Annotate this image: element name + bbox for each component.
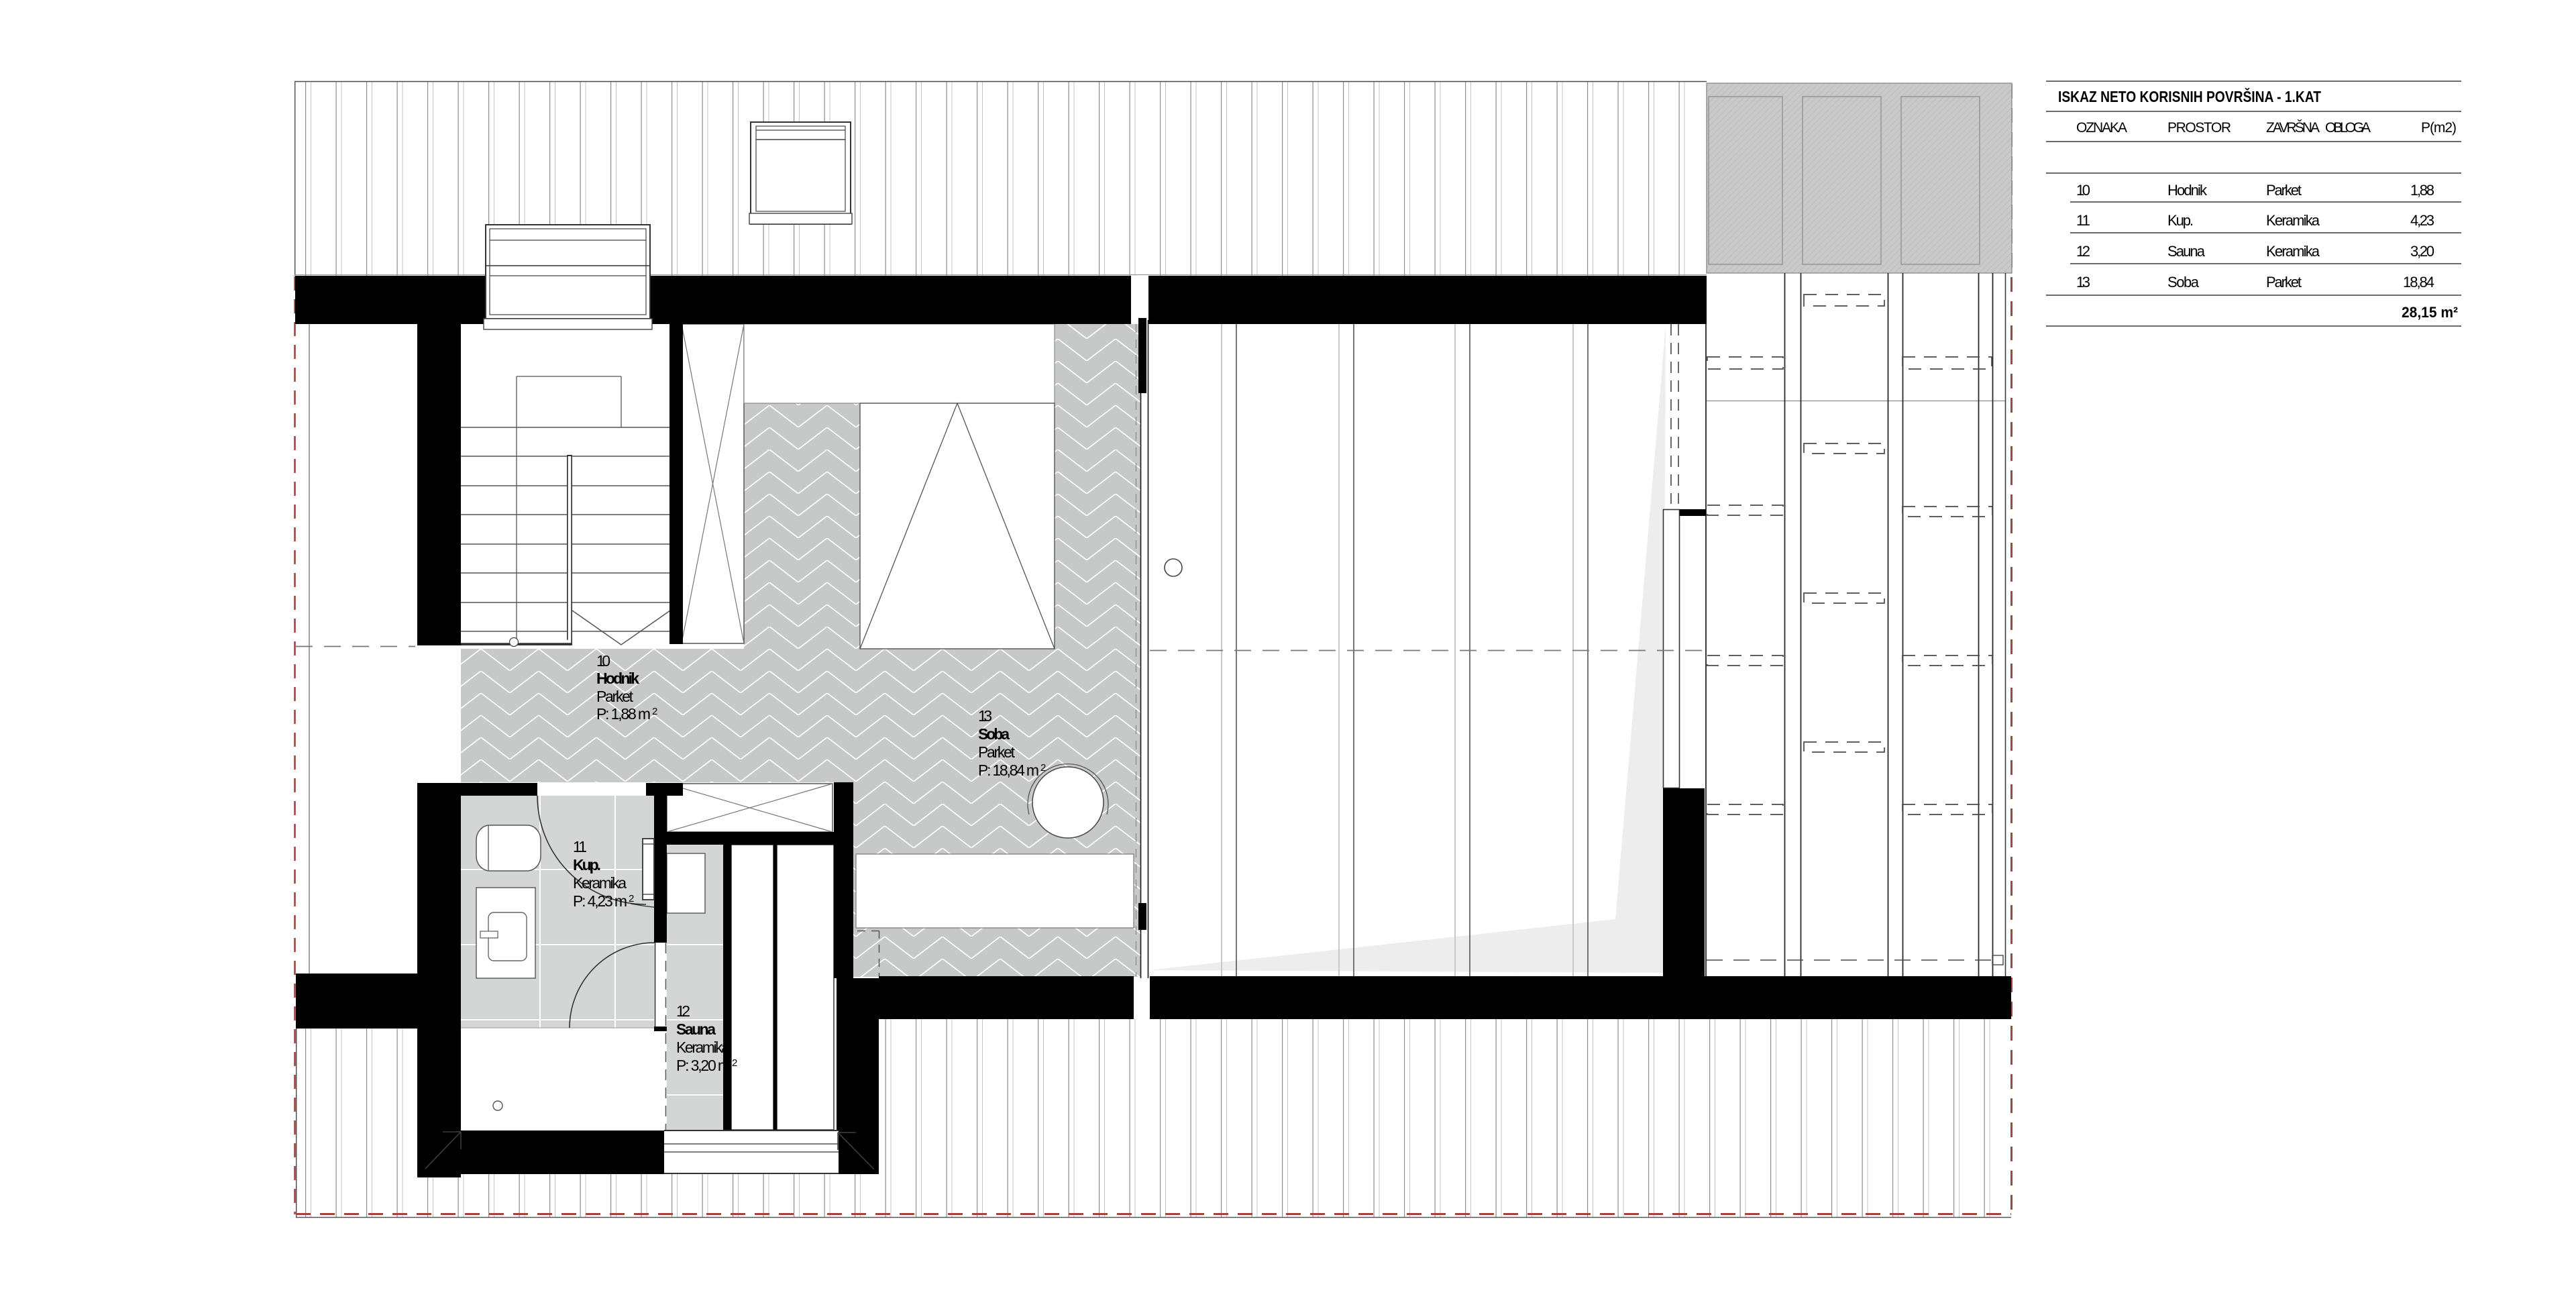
svg-text:P: 1,88 m: P: 1,88 m <box>596 705 651 723</box>
svg-text:12: 12 <box>676 1002 690 1020</box>
svg-text:4,23: 4,23 <box>2410 212 2434 229</box>
svg-text:3,20: 3,20 <box>2410 243 2434 260</box>
svg-text:2: 2 <box>629 893 634 904</box>
svg-text:Soba: Soba <box>2167 274 2200 291</box>
svg-text:13: 13 <box>978 707 992 725</box>
svg-text:28,15 m²: 28,15 m² <box>2402 304 2458 321</box>
svg-text:13: 13 <box>2076 274 2090 291</box>
svg-text:OBLOGA: OBLOGA <box>2325 120 2371 136</box>
svg-text:ISKAZ NETO KORISNIH POVRŠINA -: ISKAZ NETO KORISNIH POVRŠINA - 1.KAT <box>2058 87 2321 105</box>
svg-text:Keramika: Keramika <box>2266 243 2320 260</box>
svg-text:Soba: Soba <box>978 725 1010 743</box>
svg-text:P: 4,23 m: P: 4,23 m <box>573 892 627 910</box>
svg-text:P: 18,84 m: P: 18,84 m <box>978 761 1039 779</box>
svg-text:10: 10 <box>596 652 610 670</box>
svg-text:PROSTOR: PROSTOR <box>2167 120 2231 136</box>
svg-text:1,88: 1,88 <box>2410 182 2434 199</box>
svg-text:Sauna: Sauna <box>676 1020 716 1038</box>
svg-text:Kup.: Kup. <box>573 856 601 874</box>
svg-text:2: 2 <box>652 706 657 717</box>
svg-text:Sauna: Sauna <box>2167 243 2206 260</box>
svg-text:ZAVRŠNA: ZAVRŠNA <box>2266 120 2320 136</box>
svg-text:Hodnik: Hodnik <box>596 670 639 687</box>
svg-text:Parket: Parket <box>978 743 1016 761</box>
svg-text:Hodnik: Hodnik <box>2167 182 2208 199</box>
svg-text:11: 11 <box>2076 212 2090 229</box>
svg-text:Parket: Parket <box>2266 274 2302 291</box>
svg-text:Keramika: Keramika <box>2266 212 2320 229</box>
svg-text:Keramika: Keramika <box>573 874 627 892</box>
svg-text:Parket: Parket <box>596 688 634 705</box>
svg-text:P(m2): P(m2) <box>2421 120 2457 136</box>
svg-text:Keramika: Keramika <box>676 1039 730 1056</box>
svg-text:10: 10 <box>2076 182 2090 199</box>
svg-text:11: 11 <box>573 838 587 855</box>
svg-text:Kup.: Kup. <box>2167 212 2194 229</box>
svg-text:18,84: 18,84 <box>2403 274 2434 291</box>
svg-text:Parket: Parket <box>2266 182 2302 199</box>
svg-text:OZNAKA: OZNAKA <box>2076 120 2127 136</box>
svg-text:12: 12 <box>2076 243 2090 260</box>
svg-text:2: 2 <box>732 1057 737 1069</box>
svg-text:2: 2 <box>1040 762 1046 774</box>
svg-text:P: 3,20 m: P: 3,20 m <box>676 1057 731 1074</box>
